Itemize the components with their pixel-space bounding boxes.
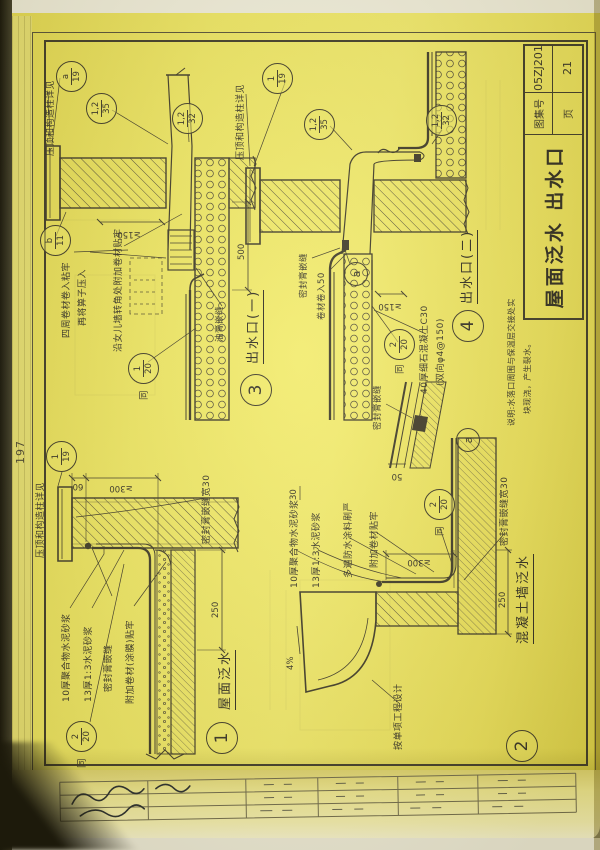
d1-cap-ref-label: 压顶和构造柱详见: [36, 482, 46, 558]
d4-seal-label: 密封膏嵌缝: [300, 253, 310, 298]
d3-ref-bubble-1-20: 120: [128, 353, 159, 384]
d1-seal-width-label: 密封膏嵌缝宽30: [202, 475, 212, 544]
d3-ref-bubble-11: b11: [40, 225, 71, 256]
d3-dim-500: 500: [237, 244, 247, 260]
atlas-number-value: 05ZJ201: [524, 44, 552, 92]
d4-number-circle: 4: [452, 310, 484, 342]
d1-number-circle: 1: [206, 722, 238, 754]
d4-dim-150: ≥150: [372, 301, 408, 311]
d2-same-as-word: 同: [432, 526, 446, 536]
d4-ref-bubble-2-20: 220: [384, 329, 415, 360]
d2-number-circle: 2: [506, 730, 538, 762]
d2-dim-250: 250: [498, 592, 508, 608]
d2-title: 混凝土墙泛水: [512, 554, 534, 644]
da-dim-50: 50: [379, 471, 415, 481]
corner-shadow: [0, 742, 144, 850]
d1-dim-300: ≥300: [103, 483, 139, 493]
d2-ref-bubble-2-20: 220: [424, 489, 455, 520]
d3-grate-label-line1: 四周卷材卷入粘牢: [62, 262, 72, 338]
d3-cap-ref-label: 压顶和构造柱详见: [46, 80, 56, 156]
d3-ref-bubble-a-19: a19: [56, 61, 87, 92]
d4-ref-bubble-35: 1,235: [304, 109, 335, 140]
scanned-atlas-photo: 197: [0, 0, 600, 850]
d3-number-circle: 3: [240, 374, 272, 406]
d1-layer-label: 13厚1:3水泥砂浆: [84, 626, 94, 702]
d1-seal-label: 密封膏嵌缝: [104, 644, 114, 692]
d4-detail-a-bubble: a: [344, 262, 368, 286]
d1-ref-bubble-1-19: 119: [46, 441, 77, 472]
rotated-page-content: 197: [0, 0, 600, 850]
d3-ref-bubble-32: 1,232: [172, 103, 203, 134]
d2-project-design-label: 按单项工程设计: [394, 683, 404, 750]
note-line-1: 说明:水落口周围与保温层交接处实: [506, 299, 517, 427]
d4-membrane-wrap-label: 卷材卷入50: [318, 272, 328, 320]
d1-dim-250: 250: [211, 602, 221, 618]
da-seal-label: 密封膏嵌缝: [374, 385, 384, 430]
d2-dim-300: ≥300: [401, 557, 437, 567]
d1-dim-60: 60: [60, 481, 96, 491]
d3-corner-membrane-label: 沿女儿墙转角处附加卷材贴牢: [114, 228, 124, 352]
d2-seal-width-label: 密封膏嵌缝宽30: [500, 477, 510, 546]
photo-left-shadow: [0, 0, 12, 850]
d3-ref-bubble-35: 1,235: [86, 93, 117, 124]
d3-dim-150: ≥150: [111, 229, 147, 239]
d4-concrete-label-line2: (双向φ4@150): [436, 318, 446, 386]
d4-ref-bubble-1-19: 119: [262, 63, 293, 94]
d2-layer-label: 13厚1:3水泥砂浆: [312, 512, 322, 588]
d4-same-as-word: 同: [392, 364, 406, 374]
photo-right-shade: [594, 0, 600, 850]
d4-cap-ref-label: 压顶和构造柱详见: [236, 84, 246, 160]
note-line-2: 块现浇，产生裂水。: [522, 339, 533, 414]
d4-title: 出水口(二): [456, 230, 478, 304]
d4-concrete-label-line1: 40厚细石混凝土C30: [420, 305, 430, 394]
d2-slope-label: 4%: [286, 657, 296, 671]
d1-layer-label: 10厚聚合物水泥砂浆: [62, 614, 72, 702]
d4-ref-bubble-32: 1,232: [426, 105, 457, 136]
page-value: 21: [553, 44, 582, 92]
d3-same-as-word: 同: [136, 390, 150, 400]
da-caption-bubble: a: [456, 428, 480, 452]
atlas-number-label: 图集号: [524, 94, 552, 134]
d1-title: 屋面泛水: [214, 650, 236, 710]
d2-coating-label: 多遍防水涂料刷严: [344, 502, 354, 578]
page-label: 页: [553, 94, 582, 134]
d2-dim-30: 30: [289, 489, 299, 500]
d1-membrane-label: 附加卷材(涂膜)贴牢: [126, 620, 136, 704]
photo-top-strip: [0, 0, 600, 13]
d2-layer-label: 10厚聚合物水泥砂浆: [290, 500, 300, 588]
d3-mastic-label: 油膏嵌缝: [216, 306, 226, 342]
d3-grate-label-line2: 再将箅子压入: [78, 269, 88, 326]
sheet-title: 屋面泛水 出水口: [523, 135, 584, 318]
d3-title: 出水口(一): [242, 290, 264, 364]
d2-membrane-label: 附加卷材贴牢: [370, 511, 380, 568]
